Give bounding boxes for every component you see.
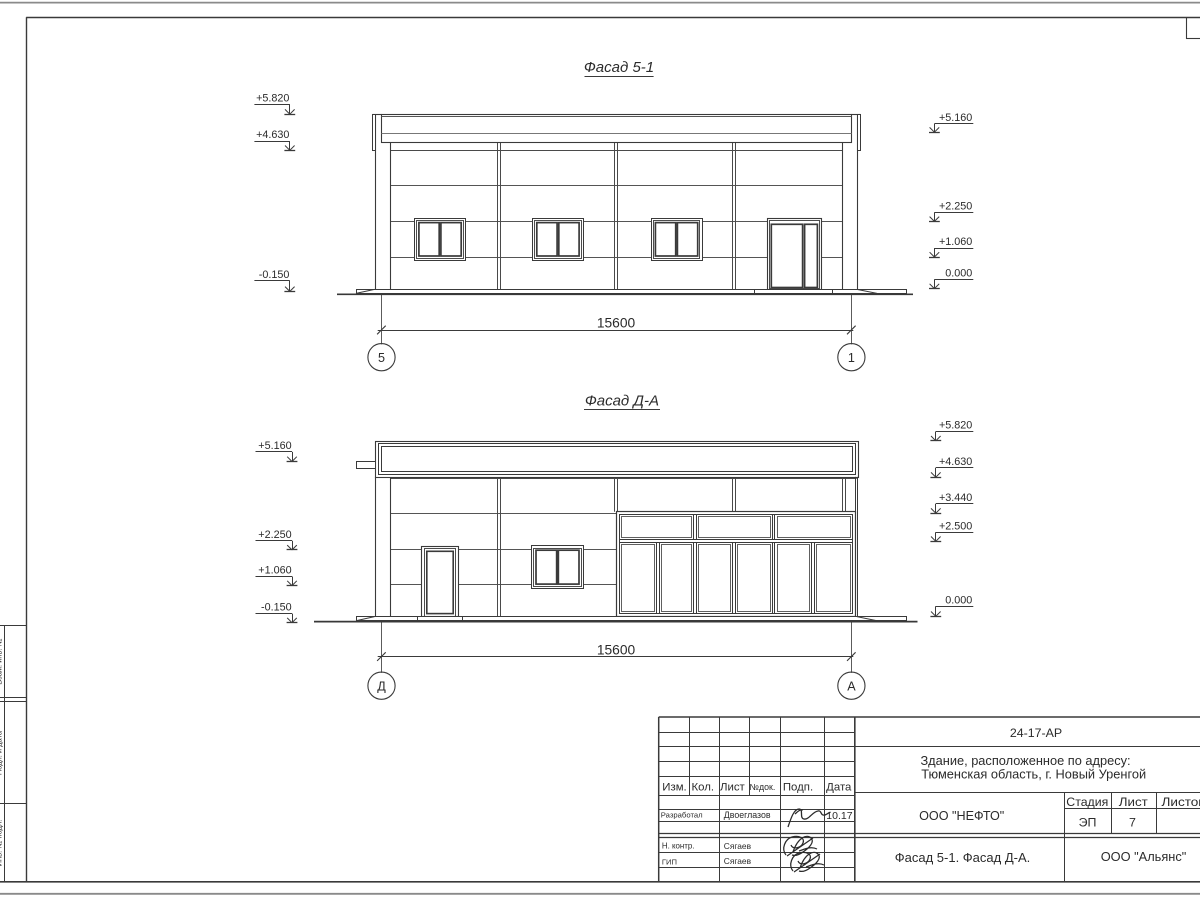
svg-text:+1.060: +1.060 [939, 236, 972, 248]
svg-text:Кол.: Кол. [692, 782, 715, 794]
svg-text:+2.500: +2.500 [939, 520, 972, 532]
svg-text:Изм.: Изм. [662, 782, 686, 794]
svg-text:ООО "НЕФТО": ООО "НЕФТО" [919, 809, 1004, 823]
svg-text:Сягаев: Сягаев [724, 841, 752, 851]
svg-text:Двоеглазов: Двоеглазов [724, 810, 771, 820]
svg-text:5: 5 [378, 351, 385, 365]
svg-text:Д: Д [377, 679, 386, 693]
svg-text:+5.820: +5.820 [939, 420, 972, 432]
svg-text:№док.: №док. [750, 782, 776, 792]
svg-text:Стадия: Стадия [1066, 795, 1108, 809]
svg-text:Инв. № подл.: Инв. № подл. [0, 820, 4, 867]
svg-text:Лист: Лист [720, 782, 746, 794]
svg-text:10.17: 10.17 [826, 810, 852, 822]
svg-text:Лист: Лист [1119, 795, 1148, 809]
svg-text:ЭП: ЭП [1079, 815, 1097, 829]
svg-text:1: 1 [848, 351, 855, 365]
svg-text:+4.630: +4.630 [939, 456, 972, 468]
svg-text:0.000: 0.000 [945, 594, 972, 606]
svg-text:+2.250: +2.250 [258, 529, 291, 541]
svg-text:0.000: 0.000 [945, 268, 972, 280]
svg-text:Фасад Д-А: Фасад Д-А [585, 393, 659, 410]
svg-text:+5.160: +5.160 [939, 112, 972, 124]
svg-text:Фасад 5-1. Фасад Д-А.: Фасад 5-1. Фасад Д-А. [895, 850, 1031, 865]
svg-text:Дата: Дата [826, 782, 852, 794]
svg-text:ООО "Альянс": ООО "Альянс" [1101, 849, 1187, 864]
svg-text:24-17-АР: 24-17-АР [1010, 726, 1062, 740]
svg-text:Тюменская область, г. Новый Ур: Тюменская область, г. Новый Уренгой [921, 767, 1146, 782]
svg-text:-0.150: -0.150 [259, 269, 290, 281]
svg-text:Разработал: Разработал [661, 811, 703, 820]
svg-text:+3.440: +3.440 [939, 492, 972, 504]
svg-text:+5.160: +5.160 [258, 440, 291, 452]
svg-text:7: 7 [1129, 815, 1136, 829]
svg-text:ГИП: ГИП [662, 857, 677, 866]
svg-text:+2.250: +2.250 [939, 201, 972, 213]
svg-text:15600: 15600 [597, 642, 636, 657]
svg-text:А: А [847, 679, 856, 693]
svg-text:Листов: Листов [1162, 795, 1200, 809]
svg-text:Н. контр.: Н. контр. [662, 841, 695, 850]
svg-text:+5.820: +5.820 [256, 92, 289, 104]
svg-text:Подп.: Подп. [783, 782, 813, 794]
svg-text:Взам. инв. №: Взам. инв. № [0, 638, 4, 684]
svg-text:Подп. и дата: Подп. и дата [0, 730, 4, 775]
svg-text:-0.150: -0.150 [261, 602, 292, 614]
svg-text:Фасад 5-1: Фасад 5-1 [584, 59, 654, 76]
svg-text:Сягаев: Сягаев [724, 856, 752, 866]
svg-text:15600: 15600 [597, 316, 636, 331]
svg-text:+4.630: +4.630 [256, 129, 289, 141]
svg-text:+1.060: +1.060 [258, 565, 291, 577]
